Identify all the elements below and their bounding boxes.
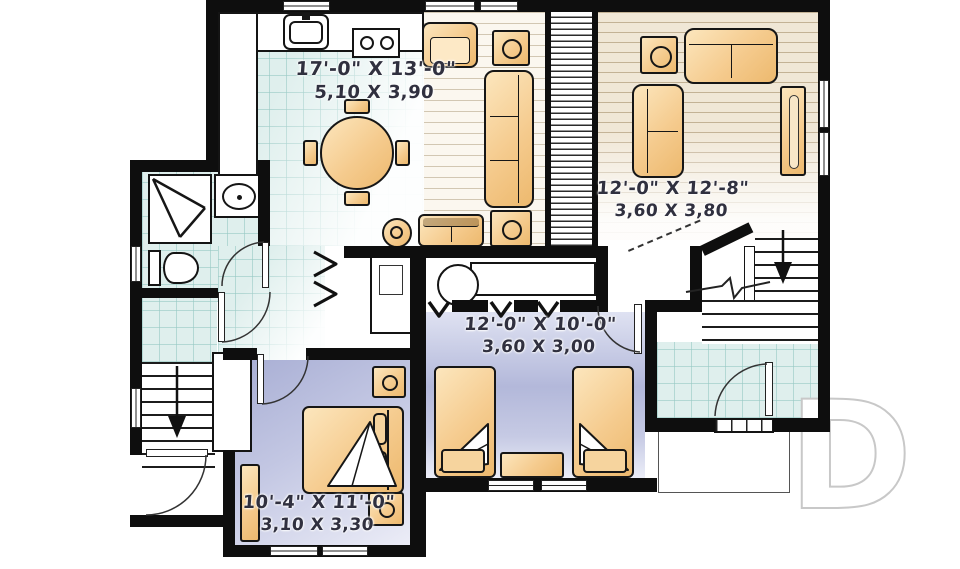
window bbox=[131, 246, 141, 282]
window bbox=[322, 546, 368, 556]
room-dimensions-metric: 3,60 X 3,00 bbox=[446, 337, 632, 357]
toilet-icon bbox=[163, 252, 199, 284]
window bbox=[131, 388, 141, 428]
cabinet-door bbox=[379, 265, 403, 295]
table-lamp-icon bbox=[382, 375, 398, 391]
wall bbox=[645, 418, 715, 432]
room-dimensions-imperial: 12'-0" X 10'-0" bbox=[447, 314, 634, 337]
nightstand-icon bbox=[372, 366, 406, 398]
toilet-tank bbox=[148, 250, 161, 286]
hall-door-arc bbox=[222, 292, 270, 342]
sink-basin bbox=[289, 21, 323, 44]
double-bed-icon bbox=[302, 406, 404, 494]
window bbox=[270, 546, 318, 556]
room-dimensions-imperial: 12'-0" X 12'-8" bbox=[592, 178, 754, 201]
bed-details bbox=[304, 408, 402, 492]
porch-outline bbox=[658, 430, 790, 493]
party-wall-hatch bbox=[551, 12, 592, 252]
end-table-icon bbox=[492, 30, 530, 66]
bedroom-1-door-arc bbox=[262, 354, 310, 406]
sofa-icon bbox=[484, 70, 534, 208]
end-table-icon bbox=[640, 36, 678, 74]
window bbox=[480, 1, 518, 11]
wall bbox=[258, 160, 270, 246]
sofa-back bbox=[518, 75, 530, 203]
window bbox=[488, 480, 534, 491]
wall bbox=[206, 0, 218, 172]
window bbox=[819, 80, 829, 128]
table-lamp-icon bbox=[390, 226, 403, 239]
bed-details bbox=[574, 368, 632, 476]
room-dimensions-imperial: 10'-4" X 11'-0" bbox=[238, 492, 400, 515]
wall bbox=[645, 300, 657, 432]
bathroom-door-arc bbox=[220, 240, 266, 288]
side-door-arc bbox=[146, 455, 208, 517]
room-label-kitchen: 17'-0" X 13'-0" 5,10 X 3,90 bbox=[283, 58, 466, 103]
bathroom-sink-icon bbox=[214, 174, 262, 218]
sink-faucet bbox=[302, 13, 310, 20]
twin-bed-icon bbox=[572, 366, 634, 478]
drummond-watermark: D bbox=[782, 390, 932, 530]
room-label-bedroom-1: 10'-4" X 11'-0" 3,10 X 3,30 bbox=[237, 492, 400, 535]
loveseat-cushion-divider bbox=[648, 131, 678, 132]
end-table-icon bbox=[490, 210, 532, 247]
closet-shelves-left bbox=[212, 352, 252, 452]
entry-door-arc bbox=[713, 362, 767, 418]
bed-details bbox=[436, 368, 494, 476]
window bbox=[425, 1, 475, 11]
loveseat-cushion-divider bbox=[451, 227, 452, 242]
room-label-bedroom-2: 12'-0" X 10'-0" 3,60 X 3,00 bbox=[446, 314, 634, 357]
dining-table-icon bbox=[320, 116, 394, 190]
table-lamp-icon bbox=[502, 39, 522, 59]
wall bbox=[130, 160, 218, 172]
room-label-living: 12'-0" X 12'-8" 3,60 X 3,80 bbox=[591, 178, 754, 221]
room-dimensions-imperial: 17'-0" X 13'-0" bbox=[285, 58, 467, 82]
twin-bed-icon bbox=[434, 366, 496, 478]
window bbox=[819, 132, 829, 176]
loveseat-back bbox=[636, 89, 648, 173]
loveseat-icon bbox=[418, 214, 484, 247]
wall bbox=[223, 450, 235, 557]
exterior-steps bbox=[714, 418, 774, 433]
built-in-cabinet bbox=[370, 256, 412, 334]
opening-chevron-icon bbox=[312, 250, 342, 308]
sofa-cushion-divider bbox=[490, 160, 518, 161]
stair-down-arrow-icon bbox=[770, 228, 796, 286]
room-dimensions-metric: 5,10 X 3,90 bbox=[283, 82, 465, 104]
window bbox=[541, 480, 587, 491]
table-lamp-icon bbox=[502, 220, 522, 240]
shower-icon bbox=[148, 174, 212, 244]
wall bbox=[223, 348, 257, 360]
watermark-letter: D bbox=[788, 370, 913, 544]
table-lamp-icon bbox=[650, 46, 672, 68]
break-line-icon bbox=[686, 276, 770, 302]
room-dimensions-metric: 3,10 X 3,30 bbox=[237, 515, 398, 535]
window bbox=[283, 1, 330, 11]
wall bbox=[306, 348, 422, 360]
tv-cabinet-slot bbox=[789, 95, 799, 169]
chair-icon bbox=[303, 140, 318, 166]
sofa-icon bbox=[684, 28, 778, 84]
chair-icon bbox=[395, 140, 410, 166]
chair-icon bbox=[344, 191, 370, 206]
stove-burner bbox=[360, 36, 374, 50]
loveseat-icon bbox=[632, 84, 684, 178]
staircase-right-lower bbox=[702, 300, 818, 344]
round-table-icon bbox=[382, 218, 412, 248]
wall bbox=[545, 0, 551, 252]
loveseat-back bbox=[423, 218, 479, 227]
wall bbox=[142, 288, 218, 298]
stove-icon bbox=[352, 28, 400, 58]
room-dimensions-metric: 3,60 X 3,80 bbox=[591, 201, 752, 221]
wall bbox=[344, 246, 608, 258]
sofa-cushion-divider bbox=[731, 45, 732, 78]
bedside-table-icon bbox=[500, 452, 564, 478]
sofa-cushion-divider bbox=[490, 116, 518, 117]
kitchen-counter-left bbox=[218, 12, 258, 178]
hall-floor-lower bbox=[142, 302, 217, 362]
kitchen-sink-icon bbox=[283, 14, 329, 50]
tv-cabinet-icon bbox=[780, 86, 806, 176]
closet-rod-bedroom-2 bbox=[470, 262, 596, 296]
stair-down-arrow-icon bbox=[164, 364, 190, 440]
shower-glass-icon bbox=[150, 176, 210, 242]
wall bbox=[773, 418, 830, 432]
sink-drain bbox=[237, 195, 242, 200]
wall bbox=[410, 246, 426, 557]
stove-burner bbox=[380, 36, 394, 50]
sofa-back bbox=[689, 32, 773, 45]
wall bbox=[818, 0, 830, 432]
wall bbox=[598, 0, 830, 12]
wall bbox=[206, 0, 598, 12]
floor-plan: D bbox=[0, 0, 960, 569]
